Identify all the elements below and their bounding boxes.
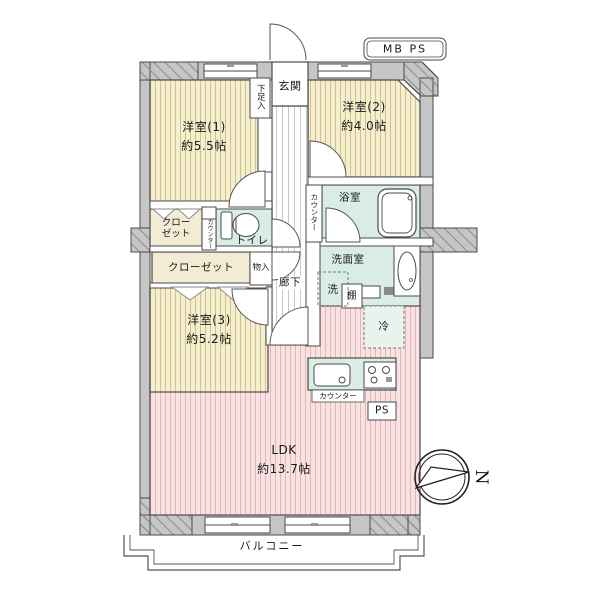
mbps-label: MB PS [383, 42, 427, 55]
ldk-name: LDK [271, 443, 296, 457]
ps-label: PS [375, 405, 389, 418]
bathtub-icon [378, 189, 416, 237]
room2-name: 洋室(2) [342, 100, 386, 114]
kitchen-counter-label: カウンター [319, 392, 357, 401]
washroom-label: 洗面室 [332, 254, 365, 267]
shoe-cabinet-label: 下足入 [256, 84, 265, 110]
fridge-label: 冷 [379, 321, 390, 334]
shelf-label: 棚 [347, 290, 357, 301]
entrance-label: 玄関 [279, 79, 302, 92]
balcony-label: バルコニー [240, 539, 305, 552]
compass-needle-outline [416, 467, 469, 488]
room1-name: 洋室(1) [182, 120, 226, 134]
bath-counter-label: カウンター [310, 193, 318, 231]
vanity-basin-icon [394, 246, 420, 296]
room3-size: 約5.2帖 [186, 332, 232, 346]
room1-size: 約5.5帖 [181, 139, 227, 153]
storage-label: 物入 [252, 263, 269, 273]
kitchen-sink-icon [314, 364, 350, 386]
closet2-label: クローゼット [168, 262, 234, 275]
toilet-counter-label: カウンター [206, 219, 212, 249]
stove-icon [364, 362, 396, 388]
washer-label: 洗 [328, 284, 339, 297]
entrance-door-arc [270, 24, 306, 60]
hanging-cabinet-box [362, 286, 380, 298]
compass-north-letter: N [471, 470, 491, 485]
room2-size: 約4.0帖 [341, 119, 387, 133]
ldk-size: 約13.7帖 [257, 462, 311, 476]
hallway-label: 廊下 [278, 277, 302, 290]
closet1-label: クローゼット [159, 218, 193, 241]
bath-label: 浴室 [339, 192, 361, 205]
floor-plan: N MB PS 玄関 下足入 洋室(1) 約5.5帖 洋室(2) 約4.0帖 カ… [0, 0, 600, 600]
toilet-hanging-box [202, 207, 216, 219]
toilet-label: トイレ [236, 235, 269, 248]
compass: N [415, 450, 491, 504]
room3-name: 洋室(3) [187, 313, 231, 327]
